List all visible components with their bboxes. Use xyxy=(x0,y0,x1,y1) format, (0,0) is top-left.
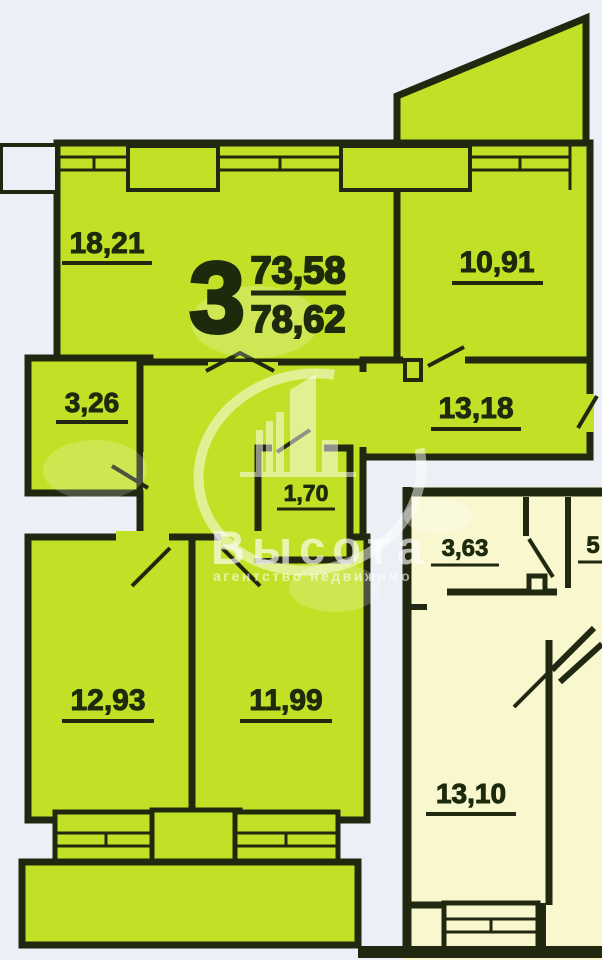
area-value: 5 xyxy=(586,532,599,559)
rooms-count: 3 xyxy=(189,242,245,354)
area-value: 11,99 xyxy=(249,684,322,717)
label-bathroom: 3,26 xyxy=(56,387,128,422)
opening-hall xyxy=(357,372,370,447)
bottom-wall-pier xyxy=(152,810,240,867)
floor-plan: Высота агентство недвижимо 18,21 3 73,58… xyxy=(0,0,602,960)
bathroom-region xyxy=(28,358,150,493)
area-value: 13,18 xyxy=(438,392,513,425)
balcony xyxy=(22,862,358,945)
label-bedroom-right: 10,91 xyxy=(452,246,543,283)
door-opening-bottom-left xyxy=(116,531,169,558)
label-adjacent-room: 13,10 xyxy=(426,778,516,814)
area-value: 13,10 xyxy=(436,778,506,809)
area-value: 3,63 xyxy=(442,535,489,562)
top-wall-pier-2 xyxy=(341,146,470,190)
floor-plan-page: Высота агентство недвижимо 18,21 3 73,58… xyxy=(0,0,602,960)
area-value: 12,93 xyxy=(70,684,145,717)
adjacent-apartment-region xyxy=(403,487,602,960)
door-hinge-bedroom-right xyxy=(405,360,421,380)
top-wall-pier-1 xyxy=(128,146,218,190)
label-closet: 1,70 xyxy=(277,480,335,509)
label-bottom-left: 12,93 xyxy=(62,684,154,721)
adjacent-balcony-edge xyxy=(358,946,602,958)
area-lower: 78,62 xyxy=(250,299,345,341)
area-value: 10,91 xyxy=(459,246,534,279)
room-bottom-left-region xyxy=(28,537,192,820)
area-value: 1,70 xyxy=(284,480,329,506)
area-value: 3,26 xyxy=(65,387,120,418)
label-living: 18,21 xyxy=(62,227,152,263)
label-bottom-middle: 11,99 xyxy=(240,684,332,721)
adjacent-wall-nib xyxy=(529,576,545,592)
area-upper: 73,58 xyxy=(250,250,345,292)
label-hallway: 13,18 xyxy=(431,392,521,429)
room-bottom-middle-region xyxy=(192,537,367,820)
area-value: 18,21 xyxy=(69,227,144,260)
top-left-recess xyxy=(1,145,57,192)
